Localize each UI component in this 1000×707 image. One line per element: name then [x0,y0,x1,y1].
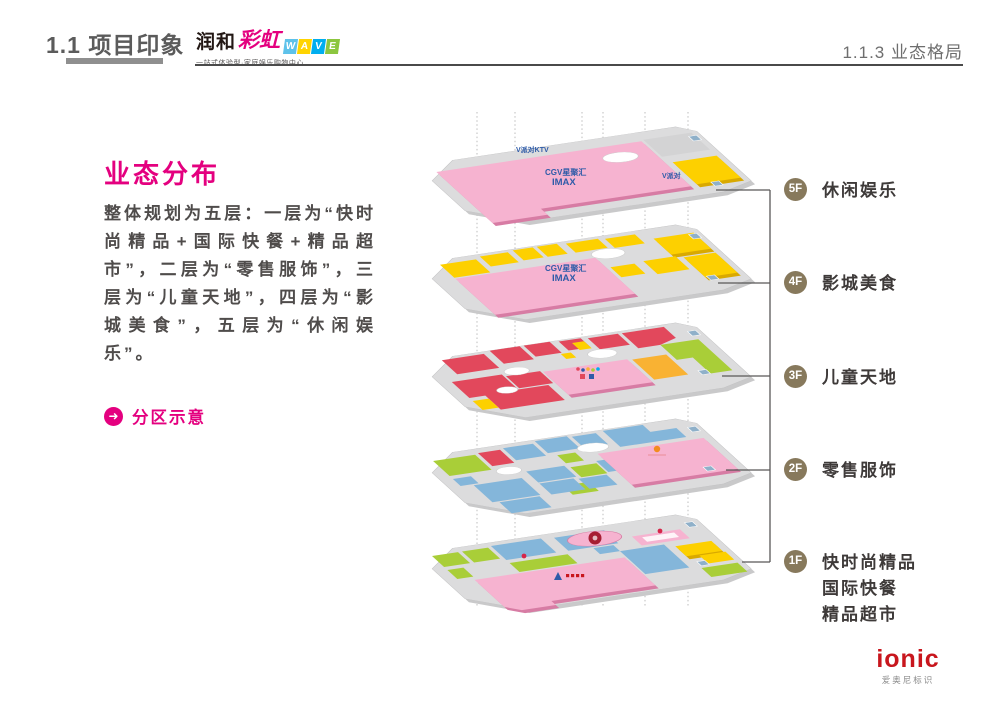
brand-cinema-name-4f: CGV星聚汇 [545,263,586,273]
floor-badge-4f: 4F [784,271,807,294]
floor-plan-1f [416,513,762,620]
floor-badge-1f: 1F [784,550,807,573]
floor-plan-2f [416,417,762,524]
floor-label-1f: 快时尚精品 国际快餐 精品超市 [822,550,917,628]
brand-cinema-format-4f: IMAX [552,273,576,284]
floor-badge-2f: 2F [784,458,807,481]
floor-plan-4f [416,223,762,330]
brand-ktv-top: V派对KTV [516,145,549,154]
brand-ktv-right: V派对 [662,171,681,180]
brand-cinema-name-5f: CGV星聚汇 [545,167,586,177]
floor-badge-3f: 3F [784,365,807,388]
slide: 1.1 项目印象 润和 彩虹 W A V E 一站式体验型·家庭娱乐购物中心 1… [0,0,1000,707]
floor-label-5f: 休闲娱乐 [822,178,898,204]
floor-plan-3f [416,321,762,428]
floor-label-2f: 零售服饰 [822,458,898,484]
floor-label-3f: 儿童天地 [822,365,898,391]
floor-badge-5f: 5F [784,178,807,201]
ionic-wordmark: ionic [866,646,950,672]
floor-plan-5f [416,125,762,232]
ionic-caption: 爱奥尼标识 [866,674,950,686]
brand-cinema-format-5f: IMAX [552,177,576,188]
floor-label-4f: 影城美食 [822,271,898,297]
legend-connector-lines [716,190,770,562]
ionic-logo: ionic 爱奥尼标识 [866,646,950,686]
